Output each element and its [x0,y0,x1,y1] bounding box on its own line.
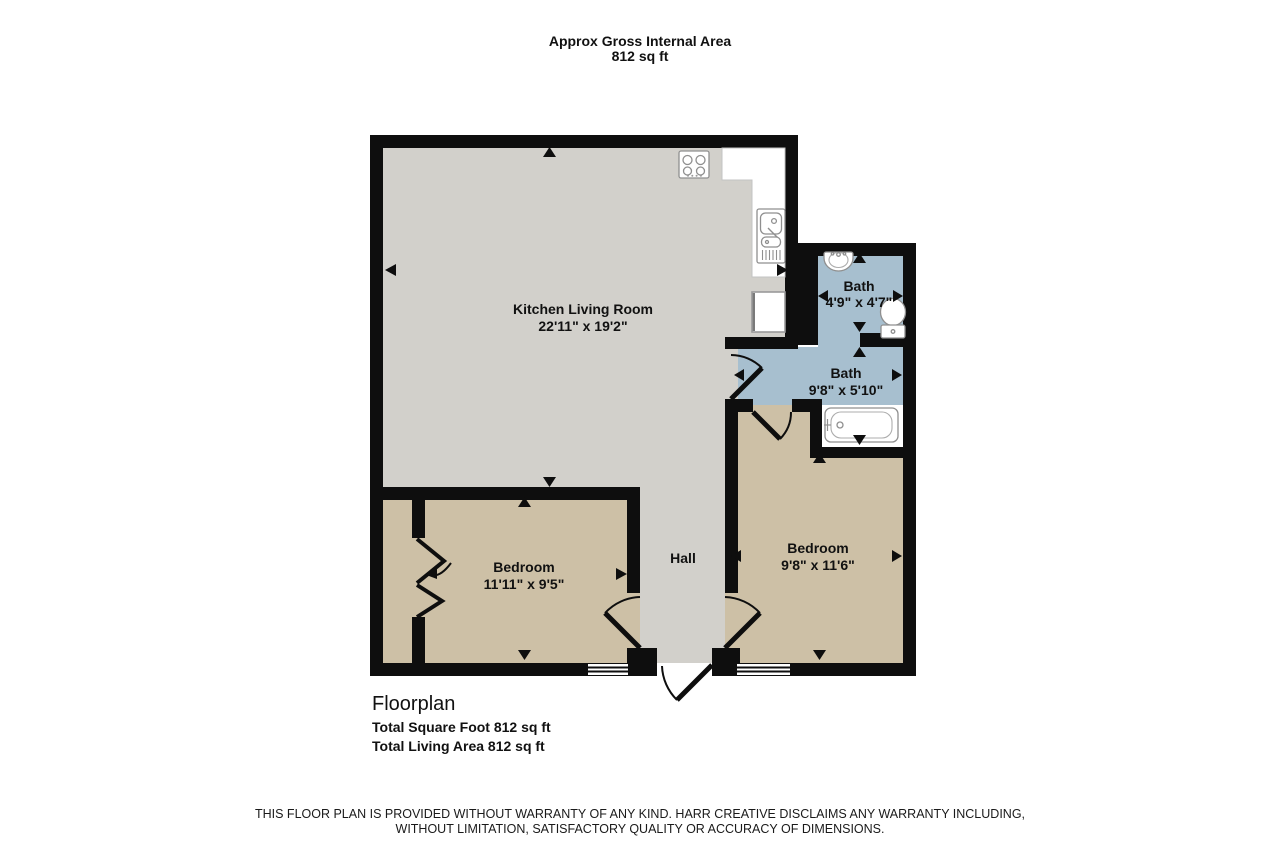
window [588,664,628,675]
hall-label: Hall [670,550,696,566]
total-square-foot: Total Square Foot 812 sq ft [372,719,551,735]
kitchen-living-label: Kitchen Living Room [513,301,653,317]
stove-icon [679,151,709,178]
floorplan-title: Floorplan [372,693,455,716]
bedroom-right-dims: 9'8" x 11'6" [781,557,855,573]
window [737,664,790,675]
disclaimer: THIS FLOOR PLAN IS PROVIDED WITHOUT WARR… [0,807,1280,836]
bedroom-left-label: Bedroom [493,559,554,575]
disclaimer-line1: THIS FLOOR PLAN IS PROVIDED WITHOUT WARR… [0,807,1280,822]
bath-large-label: Bath [830,365,861,381]
floorplan-drawing: Kitchen Living Room 22'11" x 19'2" Bedro… [0,0,1280,853]
door-arc-entrance [662,665,712,700]
bedroom-left-dims: 11'11" x 9'5" [484,576,565,592]
bath-large-dims: 9'8" x 5'10" [809,382,883,398]
kitchen-sink-icon [757,209,785,263]
bath-small-label: Bath [843,278,874,294]
total-living-area: Total Living Area 812 sq ft [372,738,545,754]
bath-small-dims: 4'9" x 4'7" [826,294,893,310]
bedroom-right-label: Bedroom [787,540,848,556]
kitchen-living-dims: 22'11" x 19'2" [538,318,627,334]
disclaimer-line2: WITHOUT LIMITATION, SATISFACTORY QUALITY… [0,822,1280,837]
fridge-icon [752,292,785,332]
